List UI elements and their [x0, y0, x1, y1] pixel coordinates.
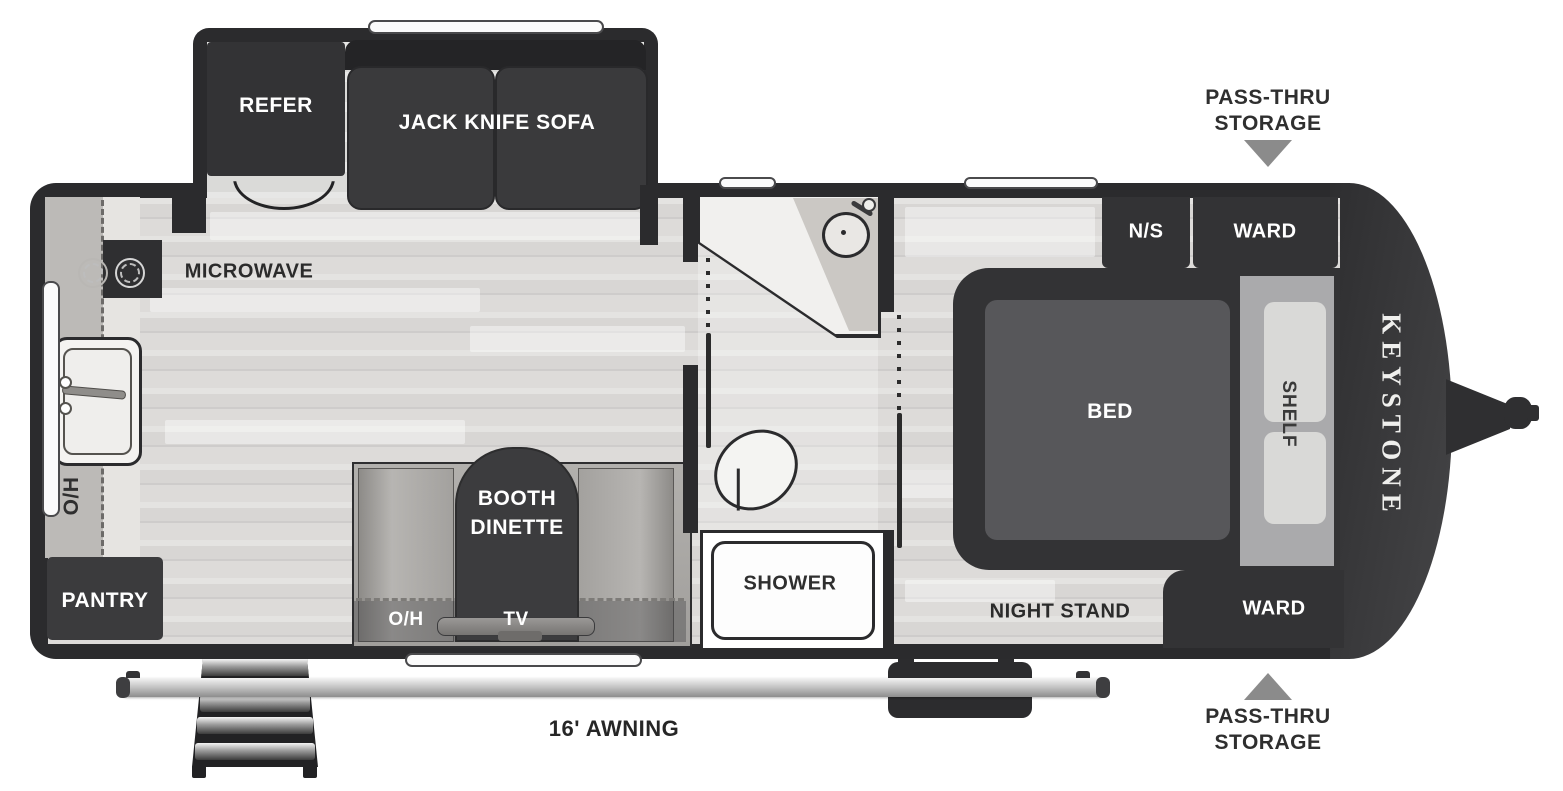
step-tread — [200, 695, 310, 712]
dinette-label-line1: BOOTH — [470, 484, 563, 513]
bedroom-door-track-dotted — [897, 315, 901, 411]
shelf-label: SHELF — [1277, 380, 1299, 447]
pass-thru-top-line1: PASS-THRU — [1205, 85, 1330, 111]
sofa-label: JACK KNIFE SOFA — [399, 111, 596, 135]
step-tread — [200, 659, 310, 676]
shower-label: SHOWER — [744, 573, 837, 596]
floor-highlight — [150, 288, 480, 312]
pass-thru-bottom-line1: PASS-THRU — [1205, 704, 1330, 730]
tv-stand — [498, 631, 542, 641]
window — [719, 177, 776, 189]
pantry-label: PANTRY — [62, 589, 149, 613]
awning-end-cap — [1096, 677, 1110, 698]
nightstand-abbr-label: N/S — [1129, 221, 1164, 244]
entry-door-rail — [405, 653, 642, 667]
awning-tube — [118, 678, 1108, 697]
microwave-label: MICROWAVE — [185, 261, 314, 284]
bathroom-wall — [683, 192, 698, 262]
step-foot — [303, 765, 317, 778]
arrow-up-icon — [1244, 673, 1292, 700]
slideout-window — [368, 20, 604, 34]
bathroom-door-leaf — [706, 333, 711, 448]
step-tread — [197, 717, 313, 734]
bed-label: BED — [1087, 400, 1133, 424]
toilet-seat-line — [737, 469, 740, 511]
floor-highlight — [470, 326, 685, 352]
arrow-down-icon — [1244, 140, 1292, 167]
dinette-label-line2: DINETTE — [470, 513, 563, 542]
entry-steps — [192, 655, 318, 767]
bathroom-wall — [683, 365, 698, 533]
kitchen-sink — [53, 337, 142, 466]
bathroom-faucet-icon — [862, 198, 876, 212]
dinette-tv-label: TV — [503, 609, 528, 631]
hitch-cone — [1446, 374, 1510, 460]
floor-highlight — [210, 212, 640, 240]
floor-highlight — [905, 207, 1095, 257]
bathroom-sink — [822, 212, 870, 258]
stove-burner-icon — [115, 258, 145, 288]
side-window — [42, 281, 60, 517]
pass-thru-storage-label-top: PASS-THRU STORAGE — [1205, 85, 1330, 137]
sofa-cushion-right — [495, 66, 648, 210]
wardrobe-rear-label: WARD — [1242, 598, 1305, 621]
bathroom-sink-drain — [841, 230, 846, 235]
hitch-coupler — [1527, 405, 1539, 421]
pass-thru-top-line2: STORAGE — [1205, 111, 1330, 137]
step-foot — [192, 765, 206, 778]
awning-end-cap — [116, 677, 130, 698]
window — [964, 177, 1098, 189]
floorplan-diagram: KEYSTONE O/H PANTRY MICROWAVE BOOTH DINE — [0, 0, 1563, 791]
awning-label: 16' AWNING — [549, 716, 679, 742]
night-stand-label: NIGHT STAND — [990, 601, 1131, 624]
wall-jog — [640, 185, 658, 245]
step-tread — [195, 743, 315, 760]
brand-logo: KEYSTONE — [1376, 313, 1407, 519]
pass-thru-storage-label-bottom: PASS-THRU STORAGE — [1205, 704, 1330, 756]
pass-thru-bottom-line2: STORAGE — [1205, 730, 1330, 756]
wall-jog — [172, 185, 206, 233]
kitchen-overhead-label: O/H — [60, 477, 84, 516]
dinette-overhead-label: O/H — [388, 609, 423, 631]
refer-label: REFER — [239, 94, 313, 118]
sink-basin — [63, 348, 132, 455]
wardrobe-front-label: WARD — [1233, 221, 1296, 244]
faucet-knob-icon — [59, 402, 72, 415]
bathroom-door-track-dotted — [706, 258, 710, 328]
bedroom-door-leaf — [897, 413, 902, 548]
floor-highlight — [165, 420, 465, 444]
faucet-knob-icon — [59, 376, 72, 389]
dinette-label: BOOTH DINETTE — [470, 484, 563, 542]
sofa-cushion-left — [347, 66, 495, 210]
floor-highlight — [905, 580, 1055, 602]
stove-burner-icon — [78, 258, 108, 288]
